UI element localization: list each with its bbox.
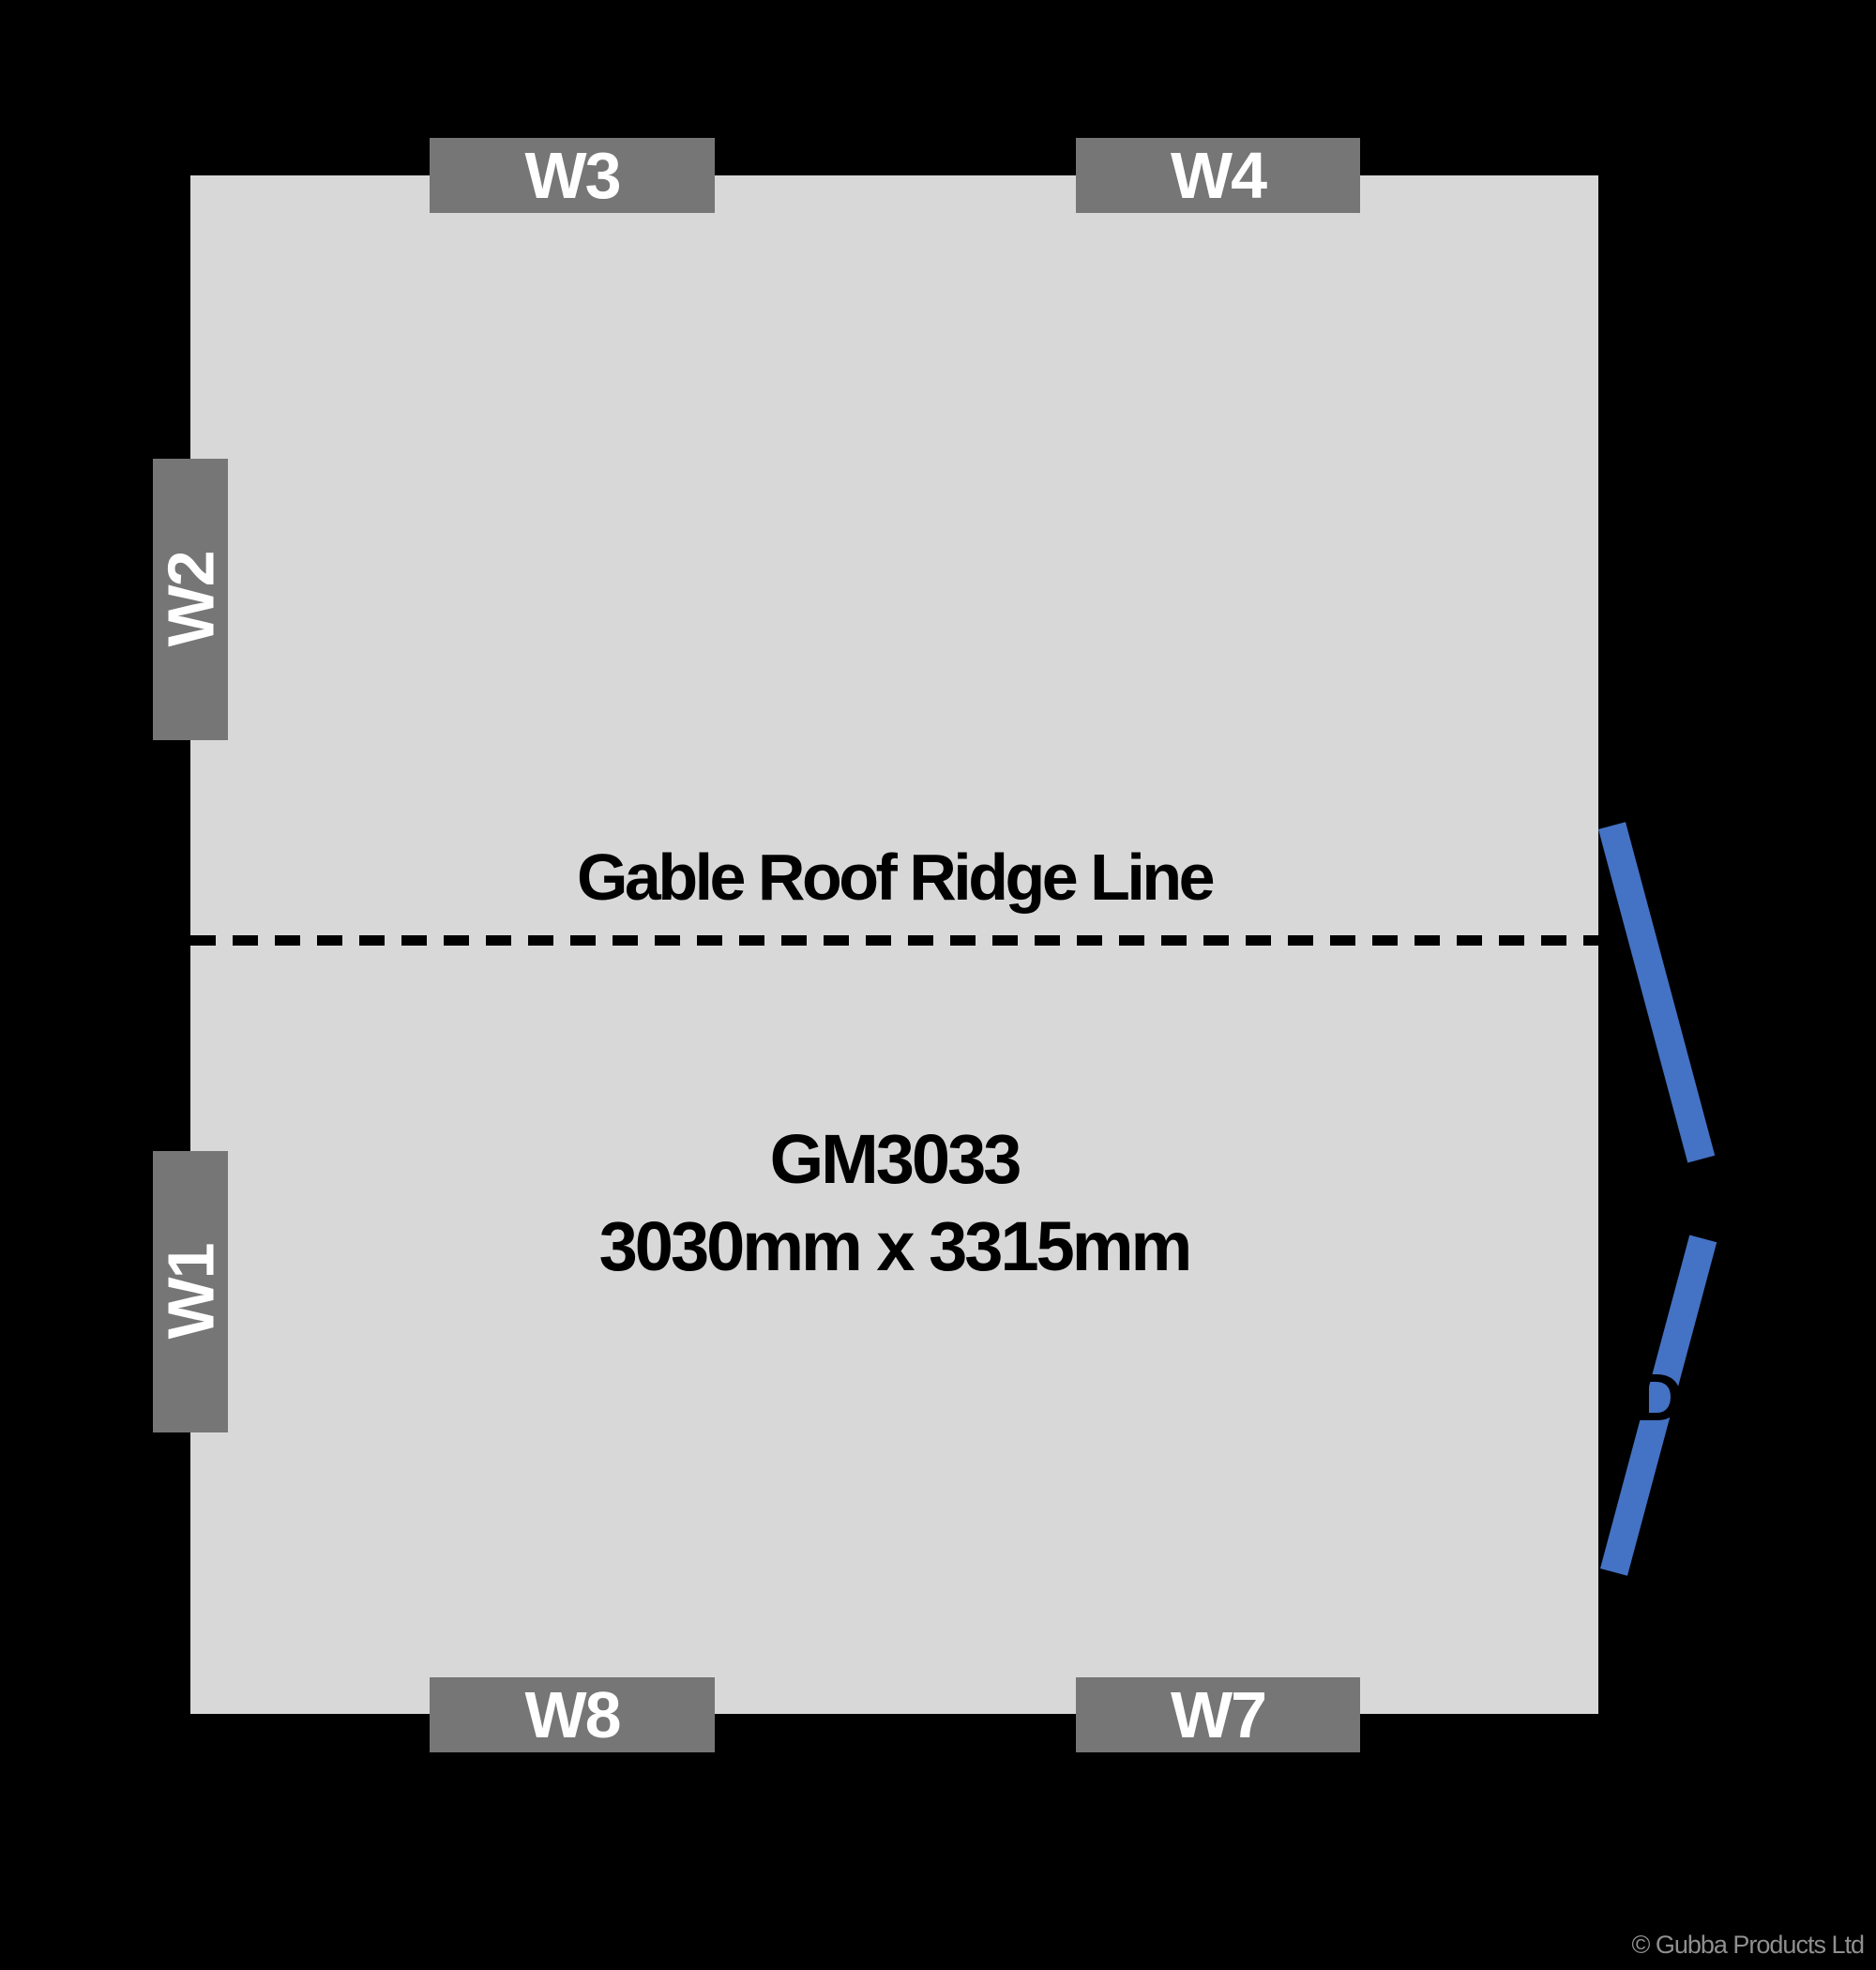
window-w2: W2 (153, 459, 228, 740)
ridge-dashed-line (190, 935, 1598, 946)
door-leaf-upper (1598, 822, 1715, 1162)
window-w3: W3 (430, 138, 715, 213)
window-w1-label: W1 (158, 1245, 223, 1340)
window-w4-label: W4 (1171, 143, 1265, 208)
model-code: GM3033 (190, 1115, 1598, 1203)
window-w8-label: W8 (525, 1682, 620, 1748)
copyright-text: © Gubba Products Ltd (1631, 1931, 1864, 1960)
window-w1: W1 (153, 1151, 228, 1432)
window-w2-label: W2 (158, 553, 223, 647)
window-w7: W7 (1076, 1677, 1360, 1752)
window-w3-label: W3 (525, 143, 620, 208)
window-w8: W8 (430, 1677, 715, 1752)
floor-plan-diagram: Gable Roof Ridge Line GM3033 3030mm x 33… (0, 0, 1876, 1970)
model-dimensions: 3030mm x 3315mm (190, 1203, 1598, 1290)
ridge-line-label: Gable Roof Ridge Line (190, 844, 1598, 910)
door-label: D (1635, 1365, 1683, 1432)
window-w4: W4 (1076, 138, 1360, 213)
window-w7-label: W7 (1171, 1682, 1265, 1748)
model-info: GM3033 3030mm x 3315mm (190, 1115, 1598, 1290)
